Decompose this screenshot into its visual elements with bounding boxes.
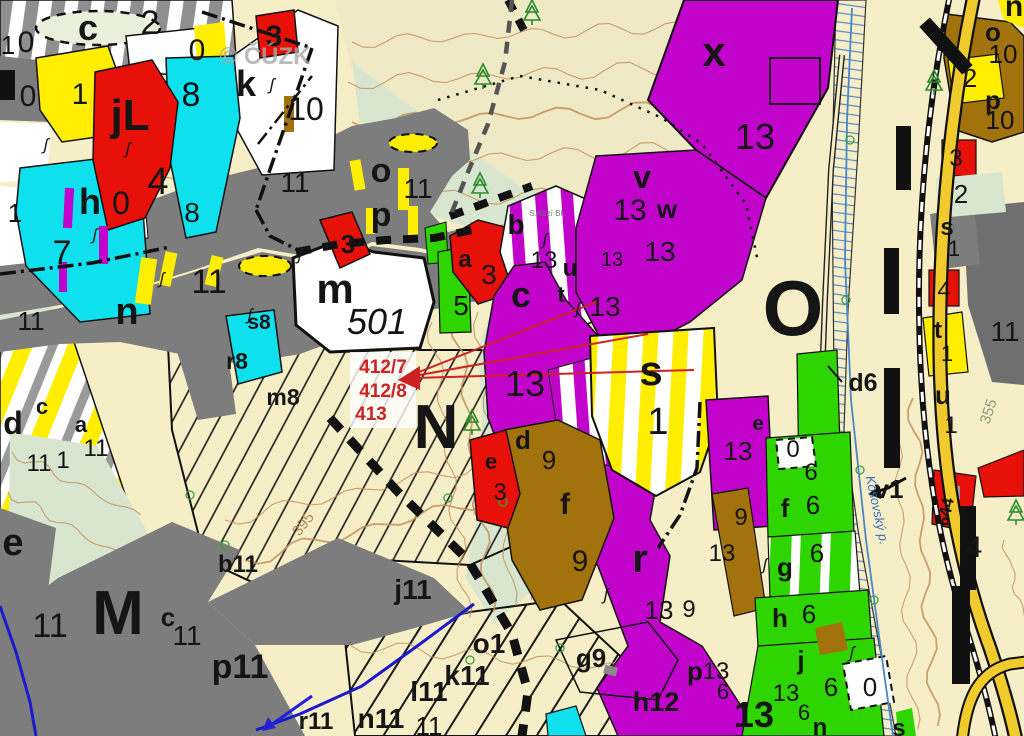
map-label: o1 [473, 628, 506, 659]
map-label: h12 [633, 687, 680, 717]
map-label: 5 [453, 290, 469, 321]
map-label: 13 [709, 540, 736, 567]
map-label: 4 [147, 161, 168, 203]
map-label: 6 [810, 538, 824, 568]
map-label: 2 [141, 4, 160, 42]
map-label: 11 [990, 316, 1019, 347]
map-label: 1 [1, 30, 15, 60]
map-label: 3 [493, 479, 506, 506]
map-label: 13 [644, 236, 675, 267]
map-label: c [78, 7, 98, 48]
map-label: s8 [247, 311, 271, 334]
map-label: 9 [734, 504, 747, 531]
map-label: 10 [986, 105, 1015, 135]
map-label: p [371, 196, 392, 234]
map-label: 11 [403, 173, 432, 204]
map-label: j [796, 645, 804, 675]
map-label: 6 [806, 490, 820, 520]
black-bar-l [0, 70, 15, 100]
map-label: c [36, 394, 48, 419]
map-label: 13 [734, 694, 774, 735]
map-label: 6 [804, 459, 817, 486]
map-label: 4 [937, 277, 950, 304]
map-label: l11 [410, 676, 447, 707]
map-label: p [687, 656, 703, 686]
magenta-bar [99, 226, 108, 264]
map-label: 0 [863, 672, 877, 702]
map-label: 13 [773, 680, 800, 707]
map-label: 10 [288, 91, 324, 127]
map-label: s [892, 715, 905, 736]
map-label: k11 [444, 660, 489, 691]
map-label: 2 [963, 63, 977, 93]
map-label: m8 [266, 384, 299, 410]
map-label: o [371, 152, 392, 190]
boundary-bar [884, 368, 900, 468]
map-label: 501 [347, 301, 407, 342]
map-label: x [702, 28, 726, 75]
map-label: 1 [56, 447, 69, 474]
road-oval [389, 134, 437, 152]
map-label: 11 [32, 607, 67, 645]
map-label: 3 [481, 259, 497, 290]
map-label: 0 [20, 80, 37, 113]
map-label: 8 [182, 76, 201, 114]
map-label: 11 [172, 620, 201, 651]
map-label: 3 [949, 145, 962, 172]
map-label: n [813, 714, 828, 736]
map-label: 1 [647, 401, 668, 443]
map-label: 0 [786, 436, 799, 463]
map-label: 10 [989, 39, 1018, 69]
map-label: S.Kozí Bk. [529, 209, 566, 218]
map-label: 13 [645, 595, 674, 625]
map-label: n [115, 291, 138, 333]
map-label: t [557, 282, 565, 307]
map-label: e [2, 522, 23, 564]
map-label: r8 [226, 348, 248, 374]
map-label: h [772, 603, 788, 633]
map-label: p11 [212, 648, 269, 686]
map-label: t [934, 317, 942, 344]
map-label: e [752, 413, 763, 435]
map-label: 6 [798, 700, 810, 725]
map-label: 13 [735, 116, 775, 157]
map-label: 9 [572, 545, 589, 578]
map-label: 1 [72, 78, 89, 111]
map-label: a [458, 246, 472, 273]
map-label: s [639, 347, 662, 394]
map-label: 8 [184, 197, 200, 228]
map-label: g [777, 552, 793, 582]
map-label: 413 [355, 404, 387, 425]
map-label: n [1005, 0, 1023, 23]
map-label: 6 [824, 672, 838, 702]
map-label: 6 [717, 679, 729, 704]
map-label: d [515, 425, 531, 455]
map-label: 1 [8, 198, 22, 228]
map-label: w [656, 194, 678, 224]
map-label: 0 [189, 34, 206, 67]
map-label: 0 [18, 26, 35, 59]
map-label: 412/8 [359, 381, 407, 402]
map-label: 13 [505, 363, 545, 404]
parcel-brown-bit [815, 622, 848, 655]
map-label: N [414, 393, 459, 462]
map-label: b [507, 209, 524, 240]
boundary-bar [952, 586, 970, 684]
map-label: r [632, 537, 648, 581]
cadastral-map[interactable]: ʃʃʃʃʃʃʃʃʃʃʃʃ 0c203101jL8k104h087111n1111… [0, 0, 1024, 736]
map-label: b11 [218, 551, 258, 578]
map-label: g9 [576, 643, 606, 673]
map-label: 3 [341, 229, 355, 259]
map-label: 4 [966, 531, 983, 564]
map-label: 0 [112, 185, 130, 221]
map-label: f [781, 493, 790, 523]
map-label: j11 [393, 574, 431, 605]
map-label: r11 [299, 708, 334, 735]
map-label: 13 [613, 194, 646, 227]
road-oval [239, 256, 291, 276]
boundary-bar [896, 126, 911, 190]
road-mark [408, 206, 418, 238]
map-label: 13 [601, 249, 623, 271]
map-label: 9 [682, 596, 695, 623]
map-label: 11 [27, 450, 52, 477]
map-label: jL [109, 91, 149, 140]
map-label: 2 [954, 179, 968, 209]
map-label: a [75, 412, 88, 437]
map-label: 11 [191, 263, 226, 301]
map-label: d6 [848, 369, 877, 397]
map-label: 1 [948, 236, 960, 261]
map-label: 412/7 [359, 357, 407, 378]
map-label: h [79, 181, 101, 222]
map-label: u [935, 380, 951, 410]
map-label: 11 [18, 306, 45, 336]
map-label: 11 [280, 167, 309, 198]
map-label: u [563, 255, 578, 282]
map-label: 9 [542, 445, 556, 475]
map-label: 6 [802, 599, 816, 629]
map-label: © ČÚZK [219, 42, 311, 70]
map-label: 13 [531, 247, 558, 274]
map-label: O [763, 264, 824, 352]
map-label: M [92, 579, 144, 648]
map-label: 7 [53, 234, 72, 272]
map-label: 1 [941, 341, 953, 366]
map-label: 1 [944, 412, 957, 439]
map-label: d [3, 405, 23, 441]
map-label: 11 [84, 435, 109, 462]
map-label: n11 [358, 703, 405, 734]
map-label: 13 [724, 436, 753, 466]
map-label: f [560, 488, 571, 521]
map-label: c [511, 274, 531, 315]
boundary-bar [884, 248, 899, 314]
map-label: 13 [589, 291, 620, 322]
map-label: 11 [416, 711, 443, 736]
map-viewport[interactable]: ʃʃʃʃʃʃʃʃʃʃʃʃ 0c203101jL8k104h087111n1111… [0, 0, 1024, 736]
map-label: v [633, 159, 651, 195]
map-label: e [485, 449, 497, 474]
